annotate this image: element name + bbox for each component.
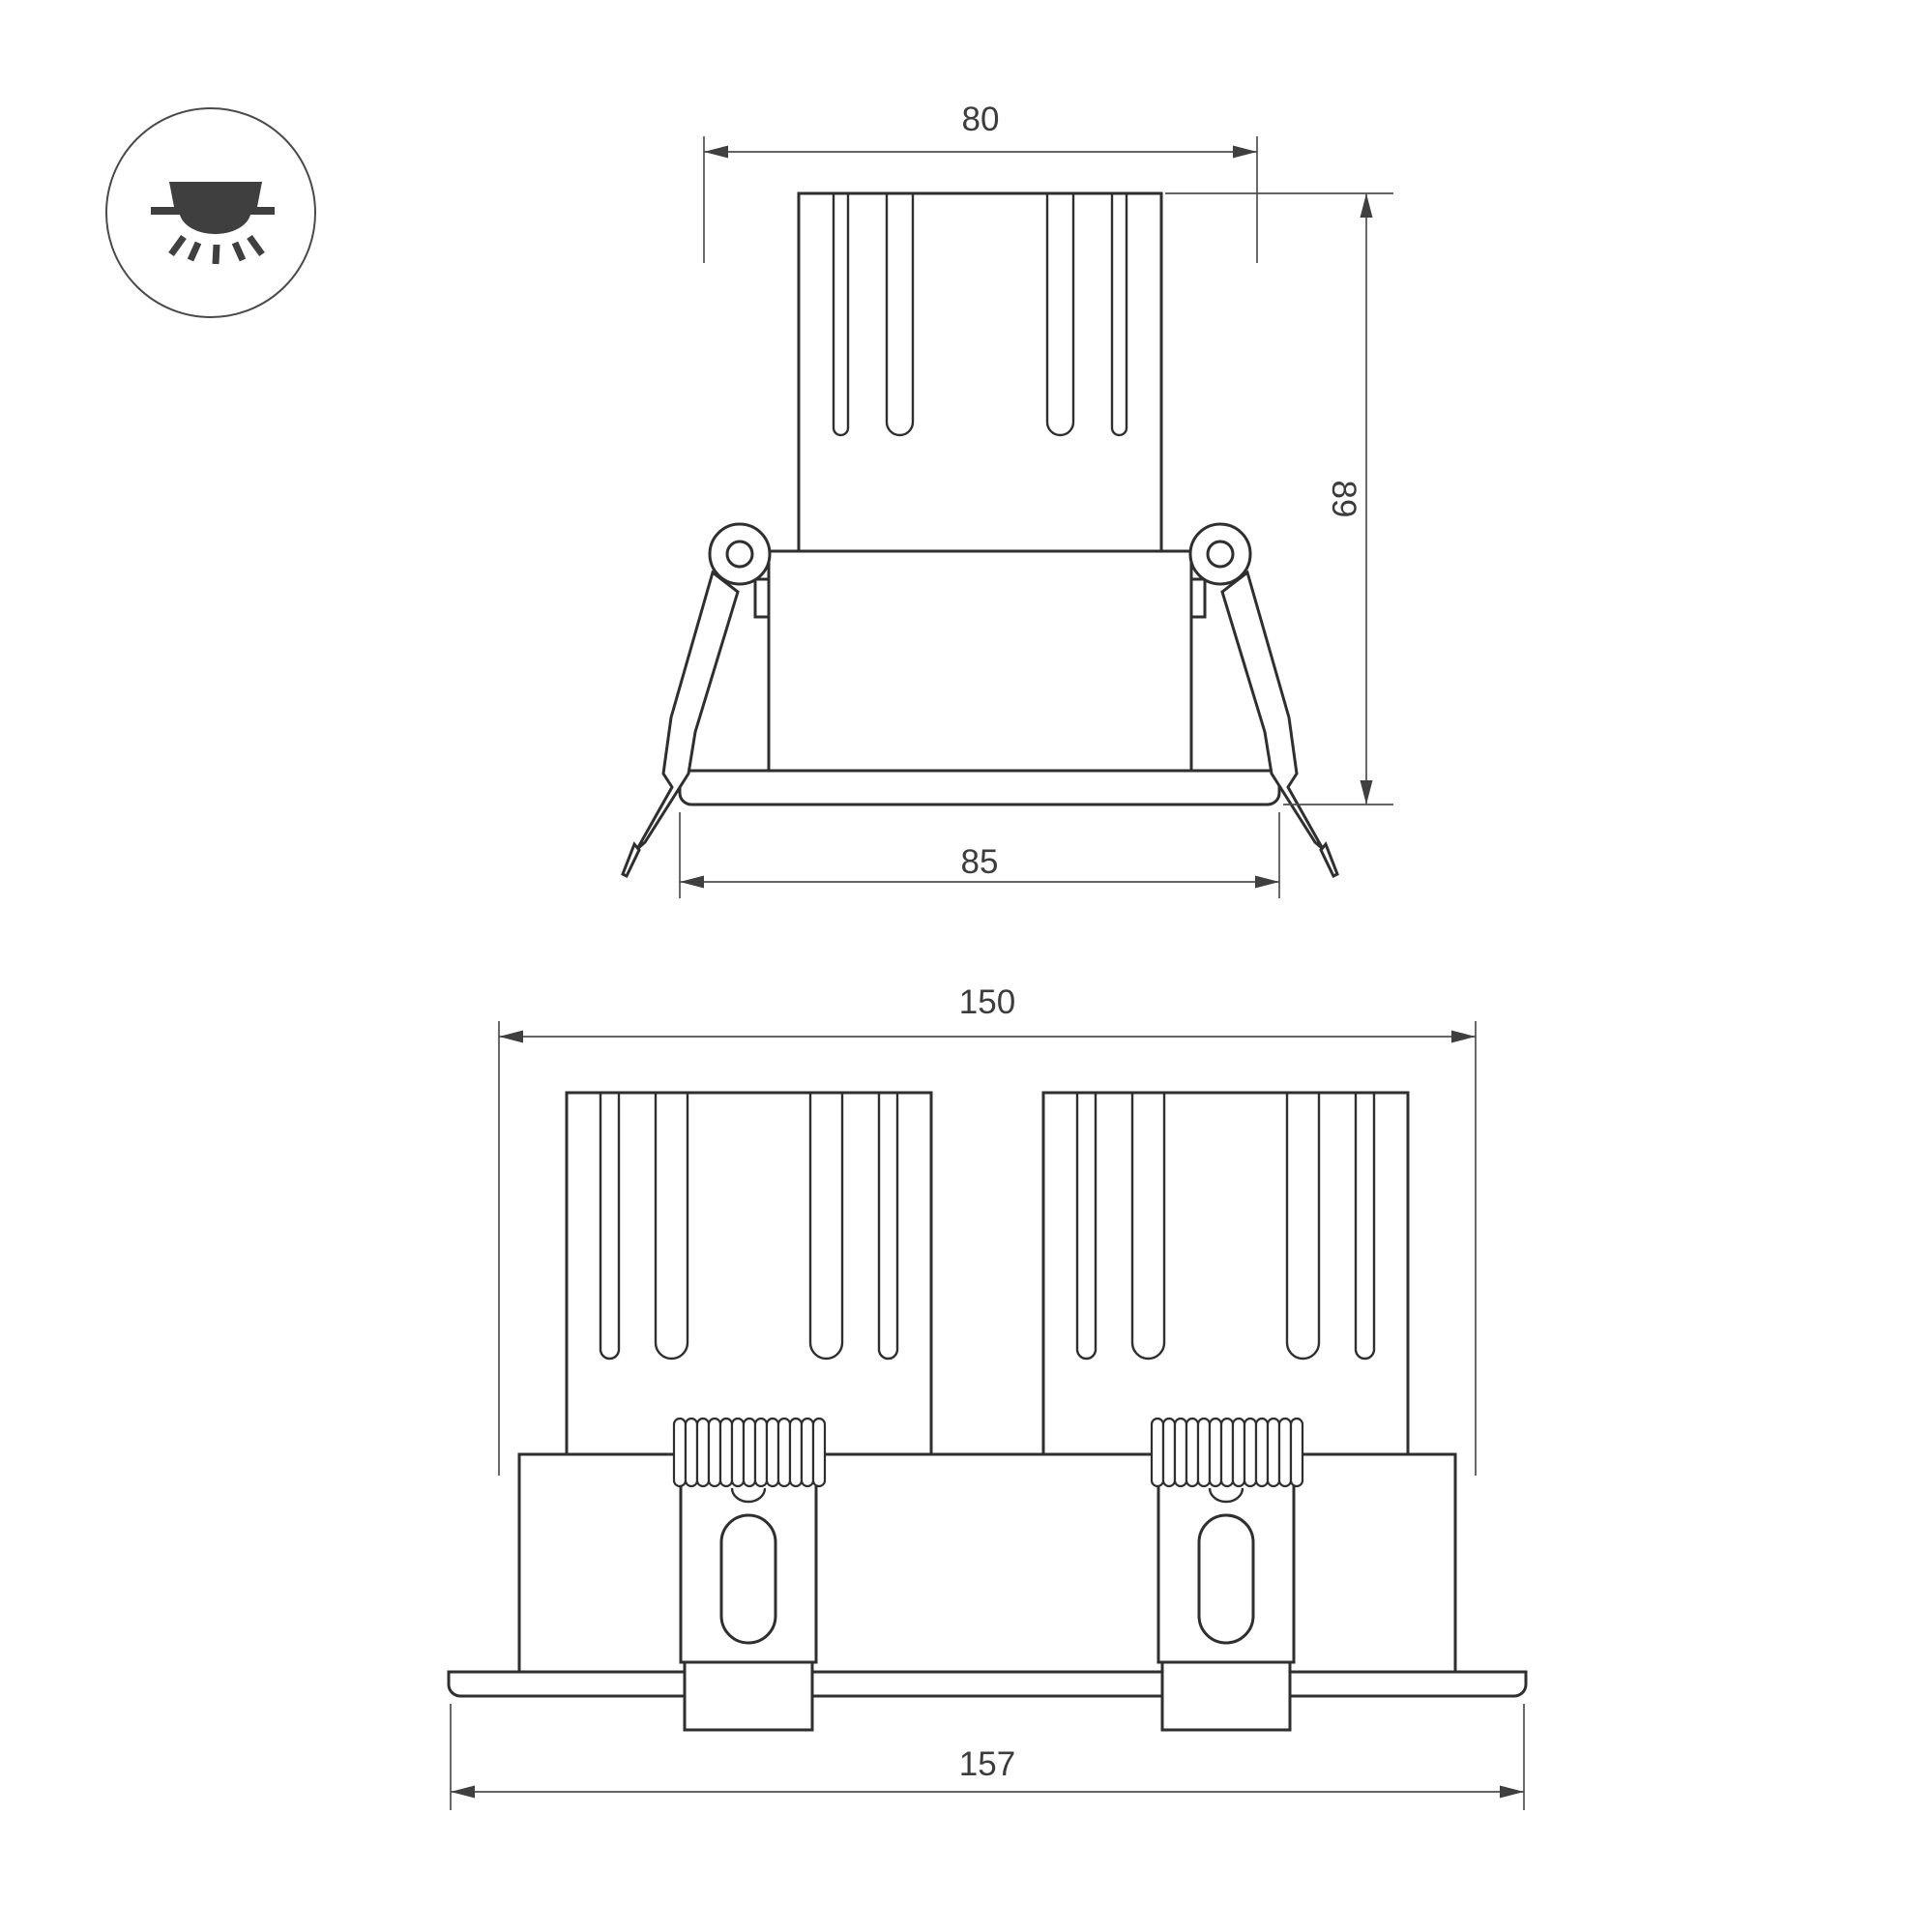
arrowhead	[499, 1031, 523, 1043]
trim-flange	[449, 1672, 1526, 1696]
view-double-front: 150 157	[449, 983, 1526, 1810]
dim-label-85: 85	[961, 843, 999, 881]
arrowhead	[1361, 780, 1373, 805]
trim-flange	[680, 771, 1279, 805]
arrowhead	[1361, 193, 1373, 218]
arrowhead	[704, 146, 728, 159]
lamp-housing-glyph	[169, 182, 262, 207]
adjustment-slot	[721, 1515, 776, 1643]
arrowhead	[1451, 1031, 1476, 1043]
view-single-front: 80 89 85	[623, 101, 1393, 898]
heatsink-left	[567, 1093, 931, 1454]
dimension-157: 157	[451, 1704, 1524, 1810]
arrowhead	[1255, 876, 1279, 889]
lamp-flange-glyph	[151, 207, 275, 215]
clip-arm	[637, 572, 738, 849]
heatsink-right	[1043, 1093, 1408, 1454]
technical-drawing-canvas: 80 89 85	[0, 0, 1932, 1932]
spring-block-left	[674, 1419, 825, 1730]
dimension-85: 85	[680, 812, 1279, 898]
spring-block-right	[1152, 1419, 1303, 1730]
housing-body	[519, 1454, 1455, 1672]
spring-clip-right	[1190, 524, 1337, 876]
clip-foot	[685, 1662, 812, 1730]
dim-label-157: 157	[959, 1745, 1015, 1783]
heatsink-outline	[567, 1093, 931, 1454]
technical-drawing-page: 80 89 85	[0, 0, 1932, 1932]
arrowhead	[451, 1786, 475, 1799]
spring-coils	[674, 1419, 825, 1486]
clip-bracket	[755, 579, 769, 617]
housing-body	[769, 551, 1191, 771]
clip-needle-tip	[623, 844, 639, 876]
arrowhead	[1500, 1786, 1524, 1799]
spring-clip-left	[623, 524, 770, 876]
downlight-badge	[106, 108, 315, 317]
arrowhead	[680, 876, 704, 889]
dim-label-80: 80	[962, 101, 1000, 138]
heatsink-outline	[799, 193, 1161, 551]
clip-pivot-hole	[727, 542, 752, 567]
dim-label-89: 89	[1325, 481, 1362, 518]
dim-label-150: 150	[959, 983, 1015, 1021]
arrowhead	[1233, 146, 1257, 159]
